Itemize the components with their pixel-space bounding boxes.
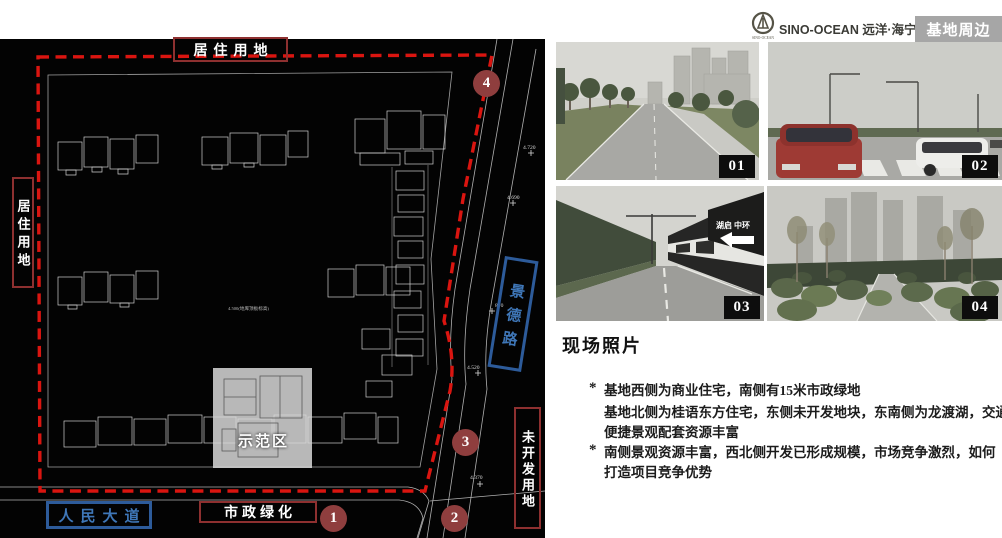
- note-line: 南侧景观资源丰富，西北侧开发已形成规模，市场竞争激烈，如何: [604, 441, 1000, 461]
- photo-1-tag: 01: [719, 155, 755, 178]
- site-photo-1: 01: [556, 42, 759, 180]
- site-photo-2: 02: [768, 42, 1002, 180]
- bullet-asterisk-1: *: [589, 380, 603, 397]
- svg-text:4.370: 4.370: [470, 475, 483, 481]
- label-residential-west: 居住用地: [12, 177, 34, 288]
- section-badge: 基地周边: [915, 16, 1002, 42]
- photo-marker-4: 4: [473, 70, 500, 97]
- photo-marker-2: 2: [441, 505, 468, 532]
- svg-text:4.720: 4.720: [523, 145, 536, 151]
- building-cluster-e: [328, 265, 410, 297]
- photo-3-tag: 03: [724, 296, 760, 319]
- label-residential-north: 居住用地: [173, 37, 288, 62]
- building-cluster-n: [202, 131, 308, 169]
- demo-zone-overlay: [213, 368, 312, 468]
- sino-ocean-logo-icon: SINO-OCEAN: [750, 11, 776, 41]
- site-photo-4: 04: [767, 186, 1002, 321]
- photo-marker-1: 1: [320, 505, 347, 532]
- billboard-text: 湖启 中环: [716, 220, 750, 230]
- site-plan-drawing: 4.500(地库顶板标高) 4.720 4.690 870 4.520 4.37…: [0, 39, 545, 538]
- note-line: 便捷景观配套资源丰富: [604, 421, 1000, 441]
- label-renmin-avenue: 人民大道: [46, 501, 152, 529]
- note-line: 打造项目竞争优势: [604, 461, 1000, 481]
- site-plan-panel: 4.500(地库顶板标高) 4.720 4.690 870 4.520 4.37…: [0, 39, 545, 538]
- building-cluster-ne: [355, 111, 445, 165]
- photo-marker-3: 3: [452, 429, 479, 456]
- building-cluster-nw: [58, 135, 158, 175]
- site-photo-3: 湖启 中环 03: [556, 186, 764, 321]
- slide: SINO-OCEAN SINO-OCEAN 远洋·海宁许村—— 基地周边: [0, 0, 1002, 538]
- photo-4-tag: 04: [962, 296, 998, 319]
- label-municipal-green: 市政绿化: [199, 501, 317, 523]
- notes-title: 现场照片: [562, 332, 642, 358]
- label-undeveloped-land: 未开发用地: [514, 407, 541, 529]
- brand-title: SINO-OCEAN 远洋·海宁许村——: [779, 19, 915, 41]
- photo-2-tag: 02: [962, 155, 998, 178]
- bullet-asterisk-2: *: [589, 442, 603, 459]
- label-demo-zone: 示范区: [238, 430, 289, 451]
- center-elevation-note: 4.500(地库顶板标高): [228, 305, 269, 312]
- note-line: 基地西侧为商业住宅，南侧有15米市政绿地: [604, 379, 1000, 399]
- distant-car: [990, 140, 1002, 148]
- logo-caption: SINO-OCEAN: [752, 36, 774, 40]
- note-line: 基地北侧为桂语东方住宅，东侧未开发地块，东南侧为龙渡湖，交通: [604, 401, 1000, 421]
- building-strip-east: [392, 165, 428, 367]
- building-cluster-w: [58, 271, 158, 309]
- red-car: [776, 124, 862, 178]
